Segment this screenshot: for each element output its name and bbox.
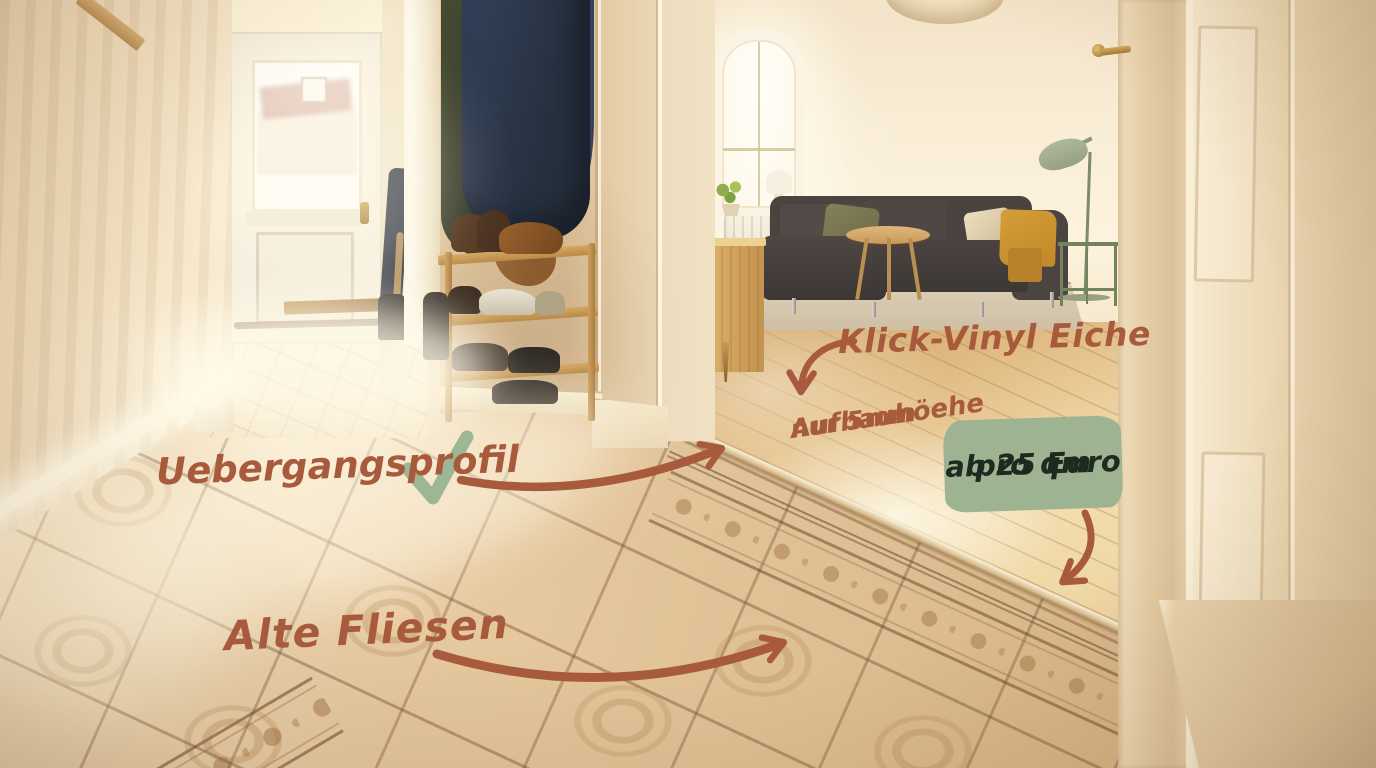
side-table-top [1058, 242, 1120, 246]
sofa-leg [1050, 292, 1054, 308]
leather-shoes [499, 222, 563, 254]
door-panel [1194, 25, 1258, 282]
price-line2: pro qm [974, 446, 1091, 482]
window-crossbar [723, 148, 795, 151]
price-badge: ab 25 Euro pro qm [942, 415, 1123, 513]
taupe-shoe [535, 291, 565, 315]
entry-door [230, 32, 382, 344]
side-table-shelf [1060, 288, 1116, 291]
entry-door-rail [246, 212, 364, 226]
sofa-leg [792, 298, 796, 314]
boots [378, 294, 406, 340]
window-mullion [758, 42, 760, 206]
sofa-leg [980, 302, 984, 317]
dark-shoes [452, 343, 508, 371]
coffee-table [846, 226, 930, 306]
picture-frame-corner [75, 0, 145, 51]
yellow-blanket-fold [1008, 248, 1042, 282]
tall-boots [423, 292, 449, 360]
white-sneakers [479, 289, 537, 315]
coffee-table-leg [887, 238, 891, 300]
coffee-table-leg [855, 238, 869, 300]
navy-jacket [462, 0, 590, 240]
window-glare [255, 63, 359, 209]
floor-shoes [492, 380, 558, 404]
entry-door-handle [360, 202, 369, 224]
vinyl-label: Klick-Vinyl Eiche [838, 314, 1152, 361]
side-table-leg [1060, 246, 1063, 306]
annotated-interior-photo: Klick-Vinyl Eiche Aufbauhöehe nur 5mm ab… [0, 0, 1376, 768]
side-table [1058, 242, 1120, 306]
side-table-leg [1086, 248, 1088, 304]
potted-plant [712, 178, 748, 208]
dark-shoes [508, 347, 560, 373]
dark-shoe [448, 286, 482, 314]
shoe-rack-leg [588, 243, 595, 421]
entry-door-window [252, 60, 362, 212]
coffee-table-leg [908, 238, 922, 300]
side-table-leg [1114, 246, 1117, 306]
